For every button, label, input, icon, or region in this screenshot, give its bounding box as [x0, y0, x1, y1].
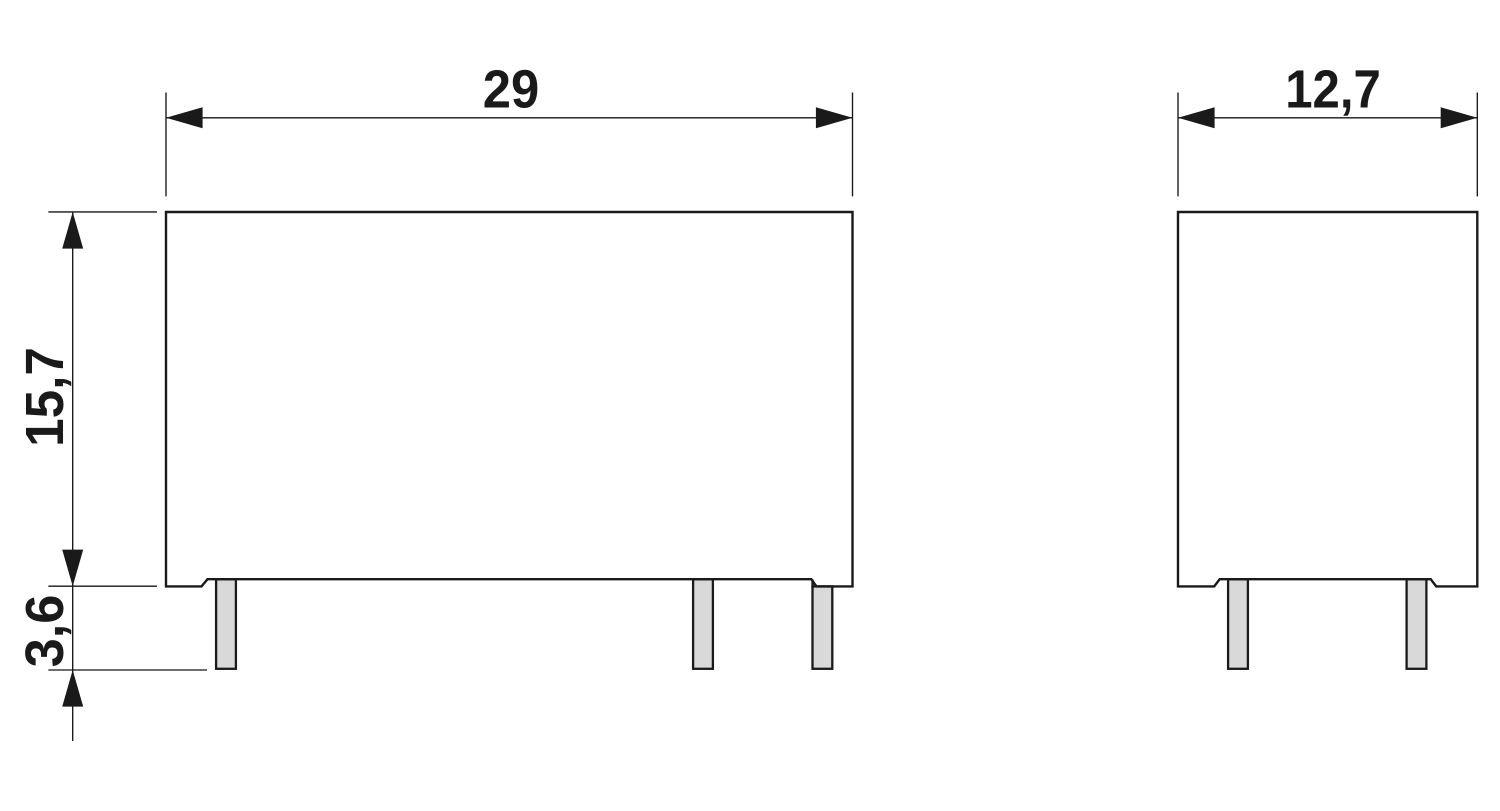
- svg-text:29: 29: [483, 60, 539, 120]
- svg-text:3,6: 3,6: [15, 595, 75, 668]
- svg-text:12,7: 12,7: [1285, 58, 1381, 119]
- svg-text:15,7: 15,7: [15, 347, 75, 447]
